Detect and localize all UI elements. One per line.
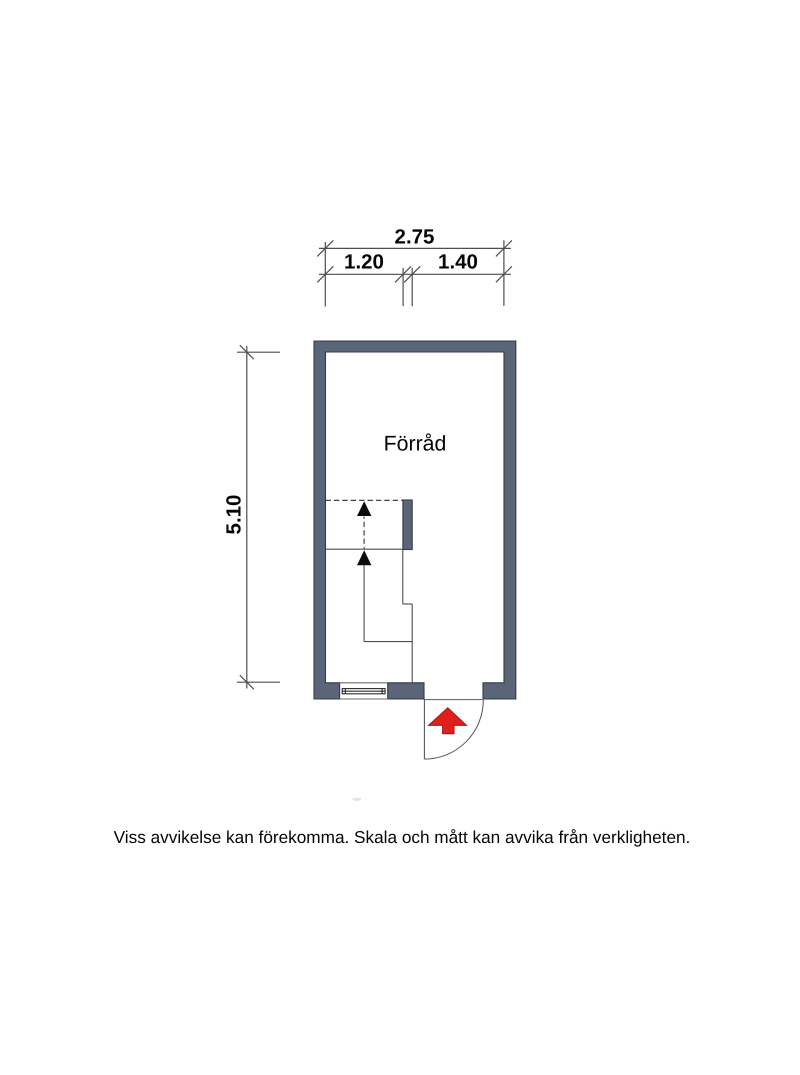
svg-text:1.40: 1.40: [438, 251, 478, 274]
svg-text:1.20: 1.20: [344, 251, 384, 274]
svg-text:Förråd: Förråd: [384, 432, 447, 456]
svg-text:Viss avvikelse kan förekomma.: Viss avvikelse kan förekomma. Skala och …: [114, 827, 691, 847]
svg-text:2.75: 2.75: [395, 225, 435, 248]
svg-text:5.10: 5.10: [223, 495, 246, 535]
